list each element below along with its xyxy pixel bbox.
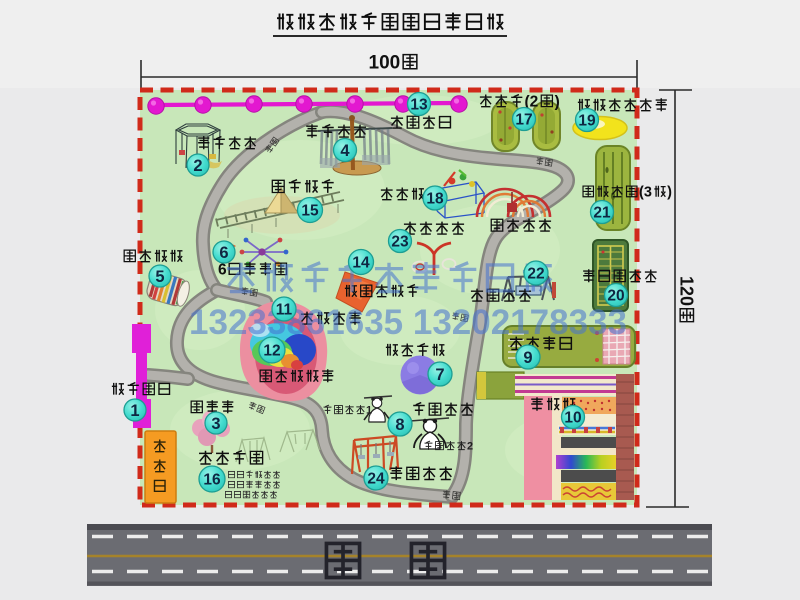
svg-text:10: 10 — [564, 409, 581, 426]
svg-text:12: 12 — [263, 342, 280, 359]
svg-text:6: 6 — [218, 261, 227, 278]
svg-text:6: 6 — [219, 244, 228, 262]
svg-text:24: 24 — [367, 470, 385, 487]
svg-text:1: 1 — [366, 405, 372, 417]
svg-text:21: 21 — [593, 204, 611, 221]
svg-text:14: 14 — [352, 254, 370, 271]
svg-text:23: 23 — [391, 233, 409, 250]
svg-text:18: 18 — [426, 190, 444, 207]
svg-text:2: 2 — [467, 441, 473, 453]
svg-text:11: 11 — [276, 301, 293, 318]
svg-text:9: 9 — [523, 349, 532, 367]
svg-text:20: 20 — [607, 287, 624, 304]
svg-text:): ) — [667, 185, 672, 201]
svg-text:3: 3 — [211, 415, 220, 433]
svg-text:4: 4 — [340, 142, 350, 160]
svg-text:2: 2 — [193, 157, 202, 175]
svg-text:7: 7 — [435, 366, 444, 384]
svg-text:16: 16 — [203, 471, 221, 488]
svg-text:1: 1 — [130, 402, 139, 420]
svg-text:13233861635 13202178333: 13233861635 13202178333 — [189, 303, 627, 342]
svg-text:5: 5 — [155, 268, 164, 286]
svg-text:13: 13 — [410, 96, 428, 113]
svg-text:17: 17 — [515, 111, 532, 128]
svg-text:100: 100 — [369, 52, 401, 73]
svg-text:8: 8 — [395, 416, 404, 434]
svg-text:15: 15 — [301, 202, 319, 219]
svg-text:): ) — [555, 93, 560, 110]
svg-text:19: 19 — [578, 112, 596, 129]
svg-text:120: 120 — [677, 276, 697, 306]
svg-text:22: 22 — [527, 265, 544, 282]
svg-text:(3: (3 — [639, 185, 652, 201]
